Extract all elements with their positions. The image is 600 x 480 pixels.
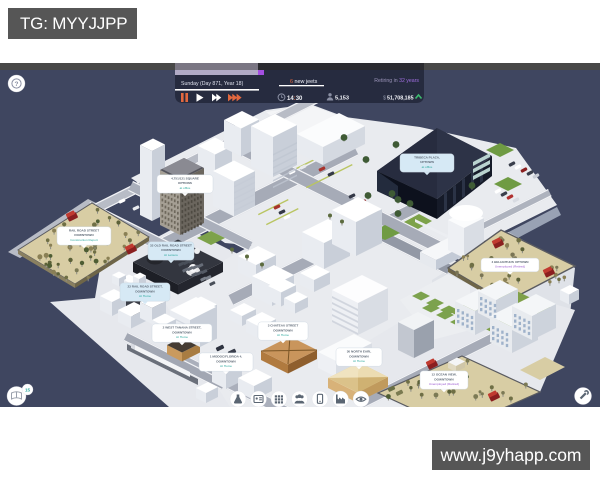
svg-text:RAIL ROAD STREET: RAIL ROAD STREET bbox=[69, 229, 99, 233]
svg-text:At Home: At Home bbox=[139, 294, 151, 298]
svg-text:DOWNTOWN: DOWNTOWN bbox=[161, 248, 181, 252]
svg-text:1 MODOC/FLORIDA 4,: 1 MODOC/FLORIDA 4, bbox=[210, 355, 243, 359]
svg-text:at office: at office bbox=[180, 186, 191, 190]
svg-text:4,751/121 SQUARE: 4,751/121 SQUARE bbox=[171, 177, 199, 181]
svg-text:DOWNTOWN: DOWNTOWN bbox=[216, 359, 236, 363]
svg-text:5,153: 5,153 bbox=[335, 96, 349, 102]
svg-text:6 new jeets: 6 new jeets bbox=[290, 79, 318, 85]
svg-text:14:30: 14:30 bbox=[287, 96, 303, 102]
svg-text:OPTIONS: OPTIONS bbox=[178, 181, 192, 185]
svg-text:DOWNTOWN: DOWNTOWN bbox=[273, 328, 293, 332]
svg-text:At Leisure: At Leisure bbox=[164, 253, 178, 257]
svg-text:Sunday (Day 871, Year 18): Sunday (Day 871, Year 18) bbox=[181, 81, 244, 87]
svg-text:30 NORTH EARL: 30 NORTH EARL bbox=[347, 350, 372, 354]
svg-text:DOWNTOWN: DOWNTOWN bbox=[349, 354, 369, 358]
svg-text:Retiring in 32 years: Retiring in 32 years bbox=[374, 78, 419, 84]
svg-text:DOWNTOWN: DOWNTOWN bbox=[434, 377, 454, 381]
svg-text:$: $ bbox=[383, 96, 386, 102]
svg-text:12 OCEAN VIEW,: 12 OCEAN VIEW, bbox=[432, 373, 457, 377]
svg-text:DOWNTOWN: DOWNTOWN bbox=[135, 289, 155, 293]
svg-text:?: ? bbox=[15, 81, 19, 88]
svg-text:UPTOWN: UPTOWN bbox=[420, 160, 434, 164]
svg-text:at office: at office bbox=[422, 165, 433, 169]
svg-text:DOWNTOWN: DOWNTOWN bbox=[172, 330, 192, 334]
svg-text:51,708,185: 51,708,185 bbox=[387, 96, 414, 102]
svg-text:At Home: At Home bbox=[176, 335, 188, 339]
svg-text:15: 15 bbox=[25, 388, 31, 393]
svg-text:4 HELIANTHUS UPTOWN: 4 HELIANTHUS UPTOWN bbox=[491, 260, 529, 264]
svg-text:DOWNTOWN: DOWNTOWN bbox=[74, 233, 94, 237]
svg-text:At Home: At Home bbox=[220, 364, 232, 368]
svg-text:Construction Report: Construction Report bbox=[70, 238, 98, 242]
svg-text:3 CHATEAU STREET: 3 CHATEAU STREET bbox=[268, 324, 299, 328]
svg-text:Unemployed (Retired): Unemployed (Retired) bbox=[429, 382, 459, 386]
svg-text:2 WEST TANANA STREET,: 2 WEST TANANA STREET, bbox=[163, 326, 202, 330]
svg-text:22 RAIL ROAD STREET,: 22 RAIL ROAD STREET, bbox=[127, 285, 162, 289]
svg-text:At Home: At Home bbox=[277, 333, 289, 337]
svg-text:Unemployed (Retired): Unemployed (Retired) bbox=[495, 265, 525, 269]
svg-text:TRIBECA PLAZA,: TRIBECA PLAZA, bbox=[414, 156, 440, 160]
svg-text:At Home: At Home bbox=[353, 359, 365, 363]
svg-text:32 OLD RAIL ROAD STREET: 32 OLD RAIL ROAD STREET bbox=[150, 244, 192, 248]
